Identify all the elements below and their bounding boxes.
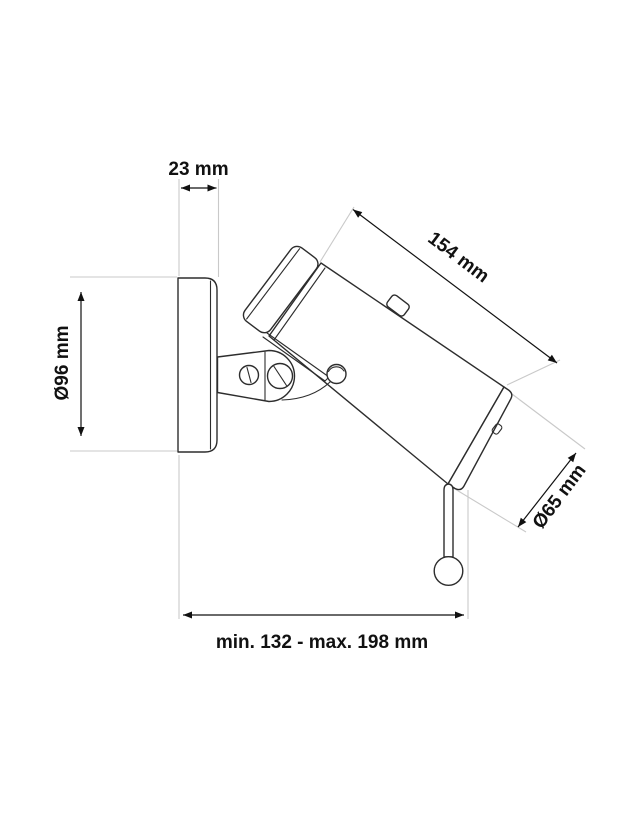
wall-plate [178,278,217,452]
spotlight-dimension-drawing: 23 mm 154 mm Ø96 mm Ø65 mm min. 132 - ma… [0,0,640,826]
dimension-drawing-page: 23 mm 154 mm Ø96 mm Ø65 mm min. 132 - ma… [0,0,640,826]
ext-line-body-length-rear [507,360,560,385]
bracket-screw-left [240,366,259,385]
pull-cord [444,484,453,557]
pull-cord-ball [434,557,463,586]
dim-label-plate-diameter: Ø96 mm [52,326,73,401]
dim-label-plate-depth: 23 mm [168,159,228,180]
dim-label-reach-range: min. 132 - max. 198 mm [216,632,428,653]
tilt-knob [327,365,346,384]
ext-line-body-diameter-top [512,394,585,449]
ext-line-body-diameter-bottom [450,486,526,532]
spotlight-fixture [178,243,512,585]
dim-label-body-length: 154 mm [424,228,493,287]
dimension-annotations: 23 mm 154 mm Ø96 mm Ø65 mm min. 132 - ma… [52,159,591,653]
bracket-screw-right [268,364,293,389]
ext-line-body-length-front [320,207,354,262]
dim-label-body-diameter: Ø65 mm [529,460,591,533]
